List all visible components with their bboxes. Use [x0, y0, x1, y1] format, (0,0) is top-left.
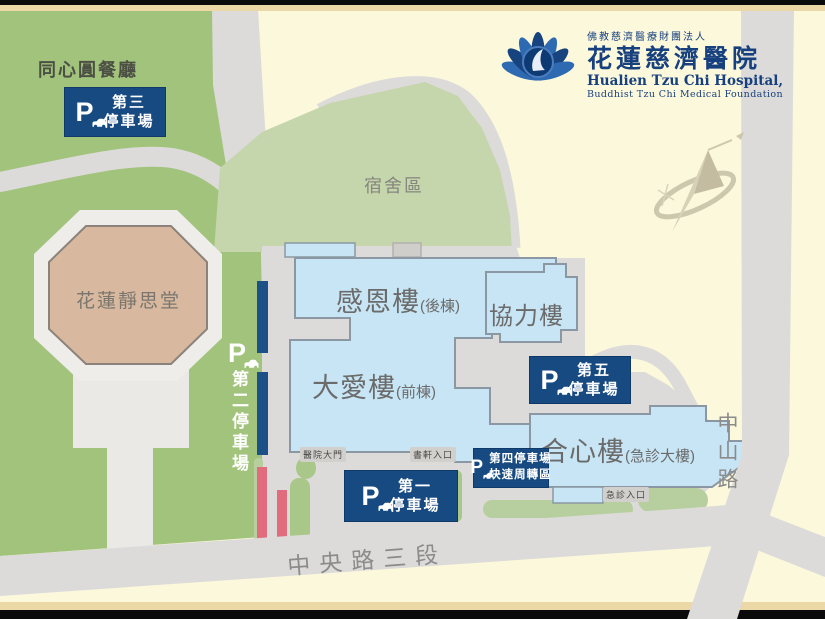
emergency-entrance-label: 急診入口	[603, 487, 649, 502]
bookstore-entrance-label: 書軒入口	[410, 447, 456, 462]
main-gate-label: 醫院大門	[300, 447, 346, 462]
parking-icon: P	[470, 458, 483, 478]
campus-map: 佛教慈濟醫療財團法人 花蓮慈濟醫院 Hualien Tzu Chi Hospit…	[0, 0, 825, 619]
small-annex-building	[285, 243, 355, 257]
parking-icon: P	[75, 99, 93, 126]
small-utility-building	[393, 243, 421, 257]
emergency-canopy	[553, 487, 603, 503]
lotus-logo-icon	[497, 26, 579, 102]
car-icon	[483, 472, 494, 480]
logo-hospital-en: Hualien Tzu Chi Hospital,	[587, 73, 783, 89]
car-icon	[378, 502, 393, 512]
parking-lot3-badge: P 第三 停車場	[65, 88, 165, 136]
car-icon	[244, 359, 259, 369]
car-icon	[92, 118, 107, 128]
hexin-building-label: 合心樓(急診大樓)	[541, 430, 695, 469]
parking-lot4-badge: P 第四停車場 快速周轉區	[474, 449, 548, 487]
parking-lot1-badge: P 第一 停車場	[345, 471, 457, 521]
top-tan-strip	[0, 5, 825, 11]
jingsi-hall-label: 花蓮靜思堂	[76, 286, 181, 313]
ganen-building-label: 感恩樓(後棟)	[336, 280, 460, 319]
logo-foundation-en: Buddhist Tzu Chi Medical Foundation	[587, 89, 783, 100]
logo-org-line: 佛教慈濟醫療財團法人	[587, 28, 783, 43]
parking-lot2-icon: P	[228, 340, 246, 367]
restaurant-label: 同心圓餐廳	[38, 56, 138, 82]
zhongshan-road-label: 中山路	[716, 412, 737, 496]
parking-lot5-badge: P 第五 停車場	[530, 357, 630, 403]
car-icon	[557, 386, 572, 396]
parking-icon: P	[361, 483, 379, 510]
hospital-logo: 佛教慈濟醫療財團法人 花蓮慈濟醫院 Hualien Tzu Chi Hospit…	[497, 26, 783, 102]
logo-hospital-zh: 花蓮慈濟醫院	[587, 45, 783, 74]
dormitory-label: 宿舍區	[364, 172, 424, 198]
top-black-strip	[0, 0, 825, 5]
daai-building-label: 大愛樓(前棟)	[312, 366, 436, 405]
xieli-building-label: 協力樓	[489, 296, 564, 331]
parking-icon: P	[540, 367, 558, 394]
parking-lot2-label: 第二停車場	[230, 370, 247, 475]
